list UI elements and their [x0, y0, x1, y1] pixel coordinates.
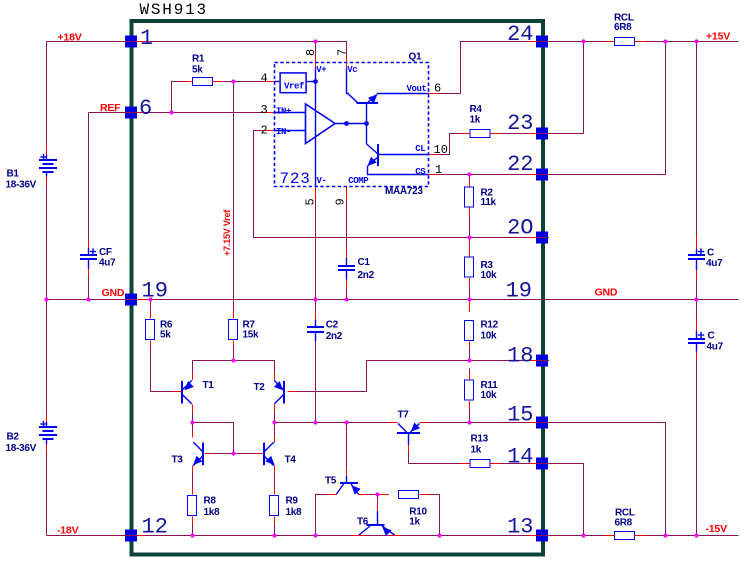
svg-text:6R8: 6R8: [615, 518, 633, 529]
svg-text:+7.15V Vref: +7.15V Vref: [222, 209, 232, 256]
svg-text:IN+: IN+: [276, 107, 291, 117]
svg-text:18: 18: [507, 344, 533, 369]
svg-text:6R8: 6R8: [614, 22, 632, 33]
svg-text:10: 10: [434, 143, 448, 157]
svg-text:1k: 1k: [471, 445, 482, 456]
svg-text:4u7: 4u7: [99, 258, 116, 269]
svg-text:IN-: IN-: [276, 127, 291, 137]
svg-text:V+: V+: [316, 65, 326, 75]
svg-text:R9: R9: [286, 496, 299, 507]
svg-text:18-36V: 18-36V: [6, 180, 37, 191]
svg-text:Q1: Q1: [409, 52, 422, 63]
svg-text:-15V: -15V: [706, 523, 728, 535]
svg-text:2O: 2O: [507, 216, 533, 241]
svg-text:1k: 1k: [470, 115, 481, 126]
svg-text:5k: 5k: [192, 65, 203, 76]
svg-text:+18V: +18V: [58, 32, 82, 44]
svg-text:B1: B1: [7, 169, 20, 180]
svg-text:6: 6: [434, 82, 441, 96]
svg-text:2n2: 2n2: [326, 331, 343, 342]
svg-text:11k: 11k: [481, 197, 497, 208]
svg-text:R4: R4: [470, 104, 483, 115]
svg-text:CL: CL: [415, 144, 425, 154]
svg-text:19: 19: [506, 279, 532, 304]
svg-text:MAA723: MAA723: [385, 186, 423, 197]
svg-text:14: 14: [507, 445, 533, 470]
svg-text:R13: R13: [471, 434, 489, 445]
svg-text:T6: T6: [357, 517, 369, 528]
svg-text:2: 2: [261, 124, 268, 138]
svg-text:5k: 5k: [160, 330, 171, 341]
svg-text:1k8: 1k8: [204, 507, 221, 518]
svg-text:19: 19: [142, 279, 168, 304]
svg-text:CS: CS: [415, 167, 426, 177]
svg-text:3: 3: [261, 103, 268, 117]
svg-text:2n2: 2n2: [358, 270, 375, 281]
svg-text:9: 9: [333, 198, 347, 205]
svg-text:R12: R12: [481, 320, 499, 331]
svg-text:Vref: Vref: [284, 82, 304, 92]
svg-text:+15V: +15V: [706, 31, 730, 43]
svg-text:22: 22: [507, 152, 533, 177]
svg-text:723: 723: [280, 170, 311, 188]
svg-text:T5: T5: [325, 476, 337, 487]
svg-text:R8: R8: [204, 496, 217, 507]
svg-text:Vc: Vc: [347, 65, 357, 75]
svg-text:T1: T1: [203, 380, 215, 391]
svg-text:WSH913: WSH913: [140, 1, 208, 19]
svg-text:V-: V-: [317, 176, 327, 186]
svg-text:T4: T4: [285, 455, 297, 466]
svg-text:4u7: 4u7: [707, 342, 724, 353]
svg-text:CF: CF: [99, 247, 112, 258]
svg-text:REF: REF: [100, 102, 121, 114]
svg-text:T7: T7: [398, 410, 410, 421]
svg-text:C: C: [708, 331, 715, 342]
svg-text:6: 6: [139, 96, 152, 121]
svg-text:1k8: 1k8: [286, 507, 303, 518]
svg-text:7: 7: [335, 49, 349, 56]
svg-text:4: 4: [261, 72, 268, 86]
svg-text:GND: GND: [595, 287, 618, 299]
svg-text:13: 13: [507, 515, 533, 540]
svg-text:10k: 10k: [481, 270, 498, 281]
svg-text:C2: C2: [326, 320, 339, 331]
svg-text:4u7: 4u7: [706, 258, 723, 269]
svg-text:5: 5: [303, 198, 317, 205]
svg-text:T3: T3: [172, 455, 184, 466]
svg-text:15: 15: [507, 403, 533, 428]
svg-text:Vout: Vout: [407, 84, 427, 94]
svg-text:-18V: -18V: [57, 525, 79, 537]
svg-text:10k: 10k: [481, 331, 498, 342]
svg-text:T2: T2: [254, 382, 266, 393]
svg-text:1k: 1k: [409, 517, 420, 528]
svg-text:8: 8: [304, 49, 318, 56]
svg-text:COMP: COMP: [348, 176, 369, 186]
svg-text:12: 12: [142, 515, 168, 540]
svg-text:1: 1: [435, 163, 442, 177]
svg-text:10k: 10k: [481, 390, 498, 401]
svg-text:C1: C1: [358, 257, 371, 268]
svg-text:24: 24: [507, 22, 533, 47]
svg-text:B2: B2: [7, 432, 20, 443]
svg-text:23: 23: [507, 111, 533, 136]
svg-text:1: 1: [140, 26, 153, 51]
svg-text:R1: R1: [192, 54, 205, 65]
svg-text:15k: 15k: [243, 330, 260, 341]
svg-text:C: C: [707, 248, 714, 259]
svg-text:18-36V: 18-36V: [6, 443, 37, 454]
svg-text:GND: GND: [102, 287, 125, 299]
